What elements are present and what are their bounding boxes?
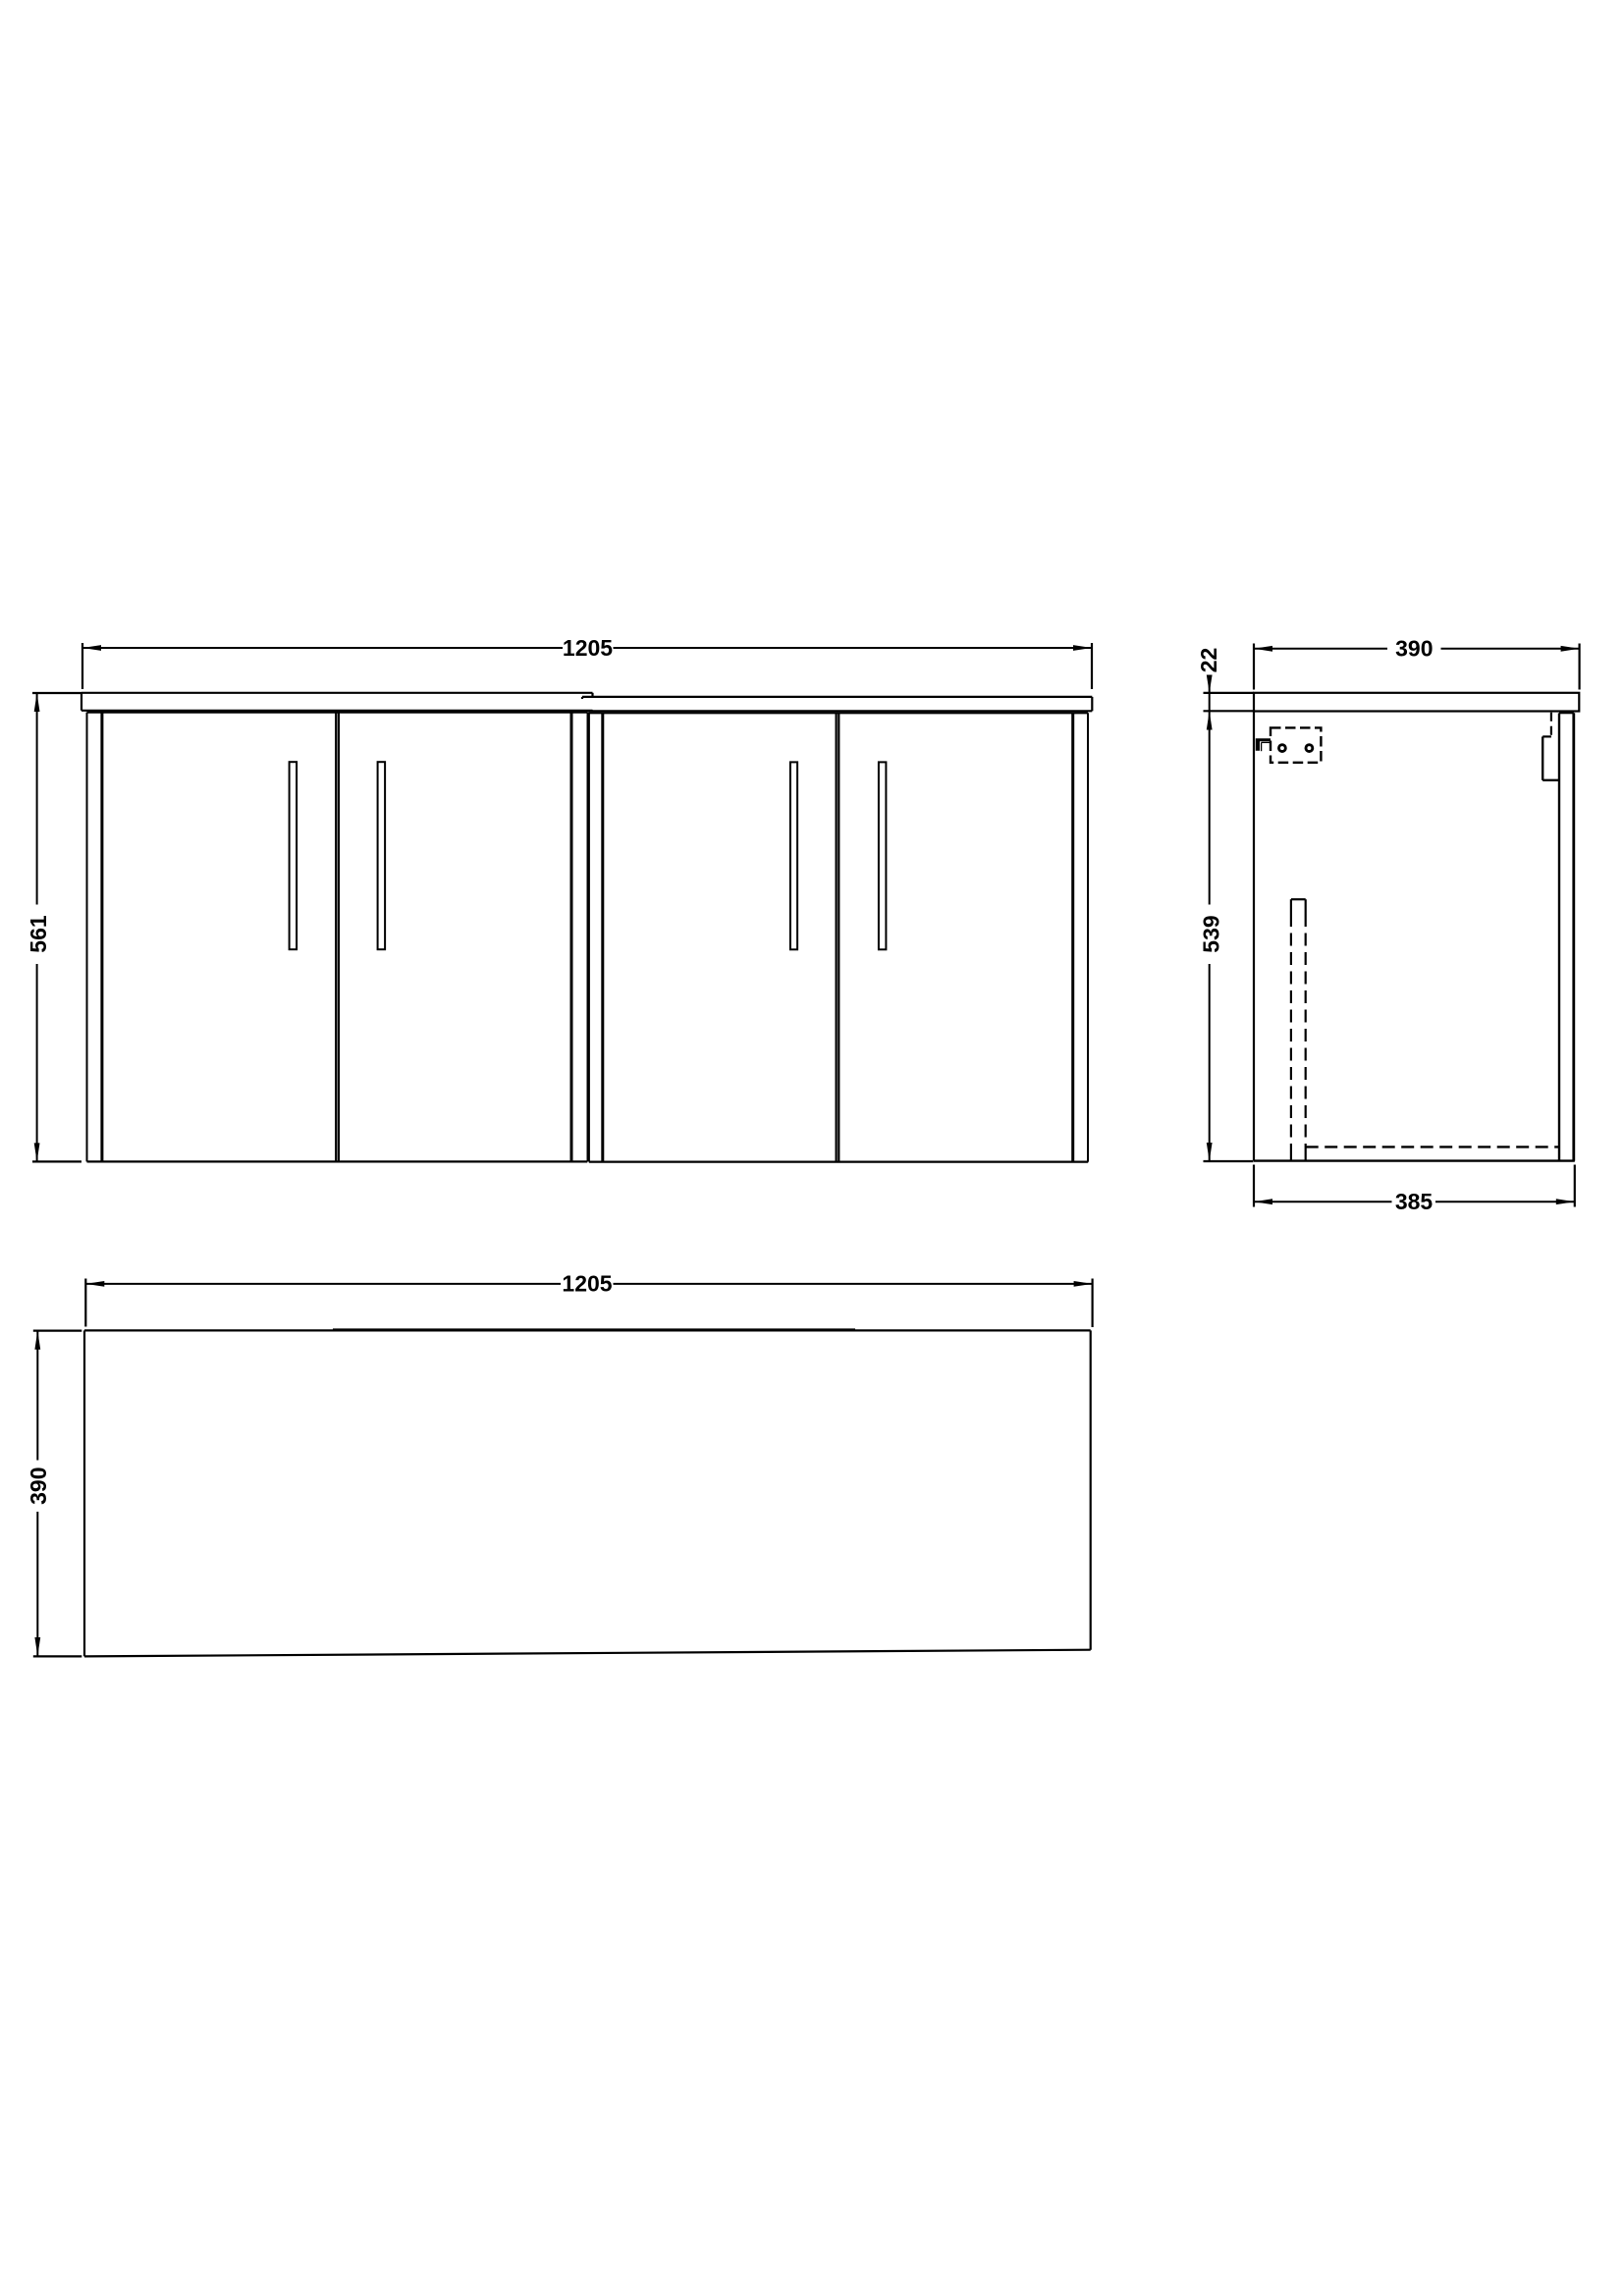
svg-text:385: 385: [1395, 1189, 1434, 1214]
svg-text:539: 539: [1199, 915, 1224, 952]
svg-text:1205: 1205: [563, 635, 613, 661]
svg-text:22: 22: [1196, 648, 1221, 673]
svg-text:390: 390: [26, 1468, 51, 1505]
svg-text:390: 390: [1395, 636, 1433, 662]
svg-text:1205: 1205: [562, 1271, 612, 1297]
svg-text:561: 561: [26, 915, 51, 953]
